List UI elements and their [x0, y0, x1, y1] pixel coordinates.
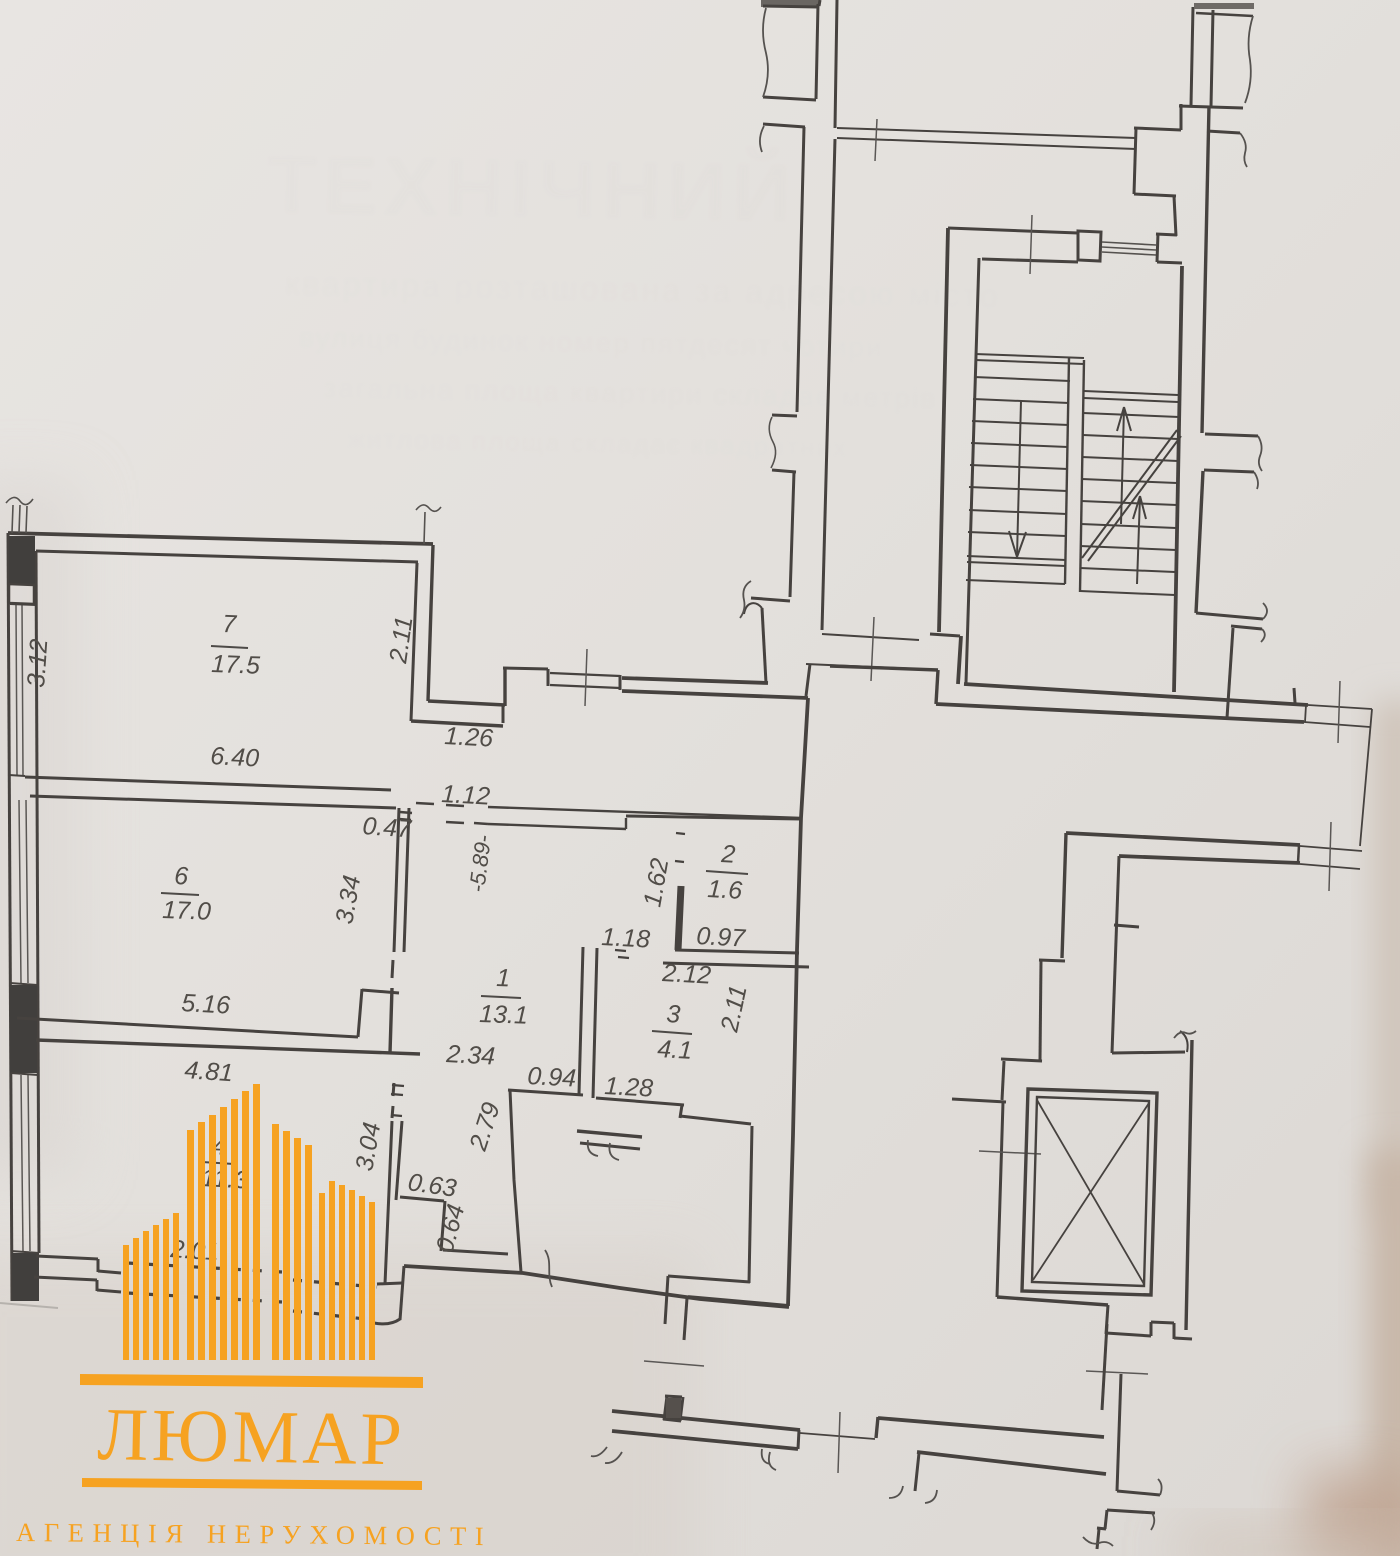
svg-text:1.12: 1.12 — [441, 780, 491, 811]
svg-text:17.0: 17.0 — [162, 896, 212, 926]
svg-text:2.12: 2.12 — [661, 959, 712, 990]
svg-text:2: 2 — [720, 840, 736, 869]
svg-text:АГЕНЦІЯ НЕРУХОМОСТІ: АГЕНЦІЯ НЕРУХОМОСТІ — [16, 1517, 492, 1551]
svg-text:0.47: 0.47 — [362, 812, 414, 843]
svg-text:17.5: 17.5 — [211, 650, 261, 680]
svg-text:6.40: 6.40 — [210, 742, 260, 773]
svg-text:6: 6 — [174, 862, 189, 890]
svg-text:1.28: 1.28 — [604, 1072, 654, 1103]
svg-text:13.1: 13.1 — [479, 1000, 529, 1030]
svg-text:ЛЮМАР: ЛЮМАР — [97, 1393, 406, 1481]
svg-text:2.34: 2.34 — [445, 1040, 496, 1071]
svg-text:3: 3 — [666, 1000, 681, 1029]
svg-text:4.1: 4.1 — [657, 1035, 693, 1065]
svg-text:1.6: 1.6 — [707, 875, 743, 905]
svg-text:7: 7 — [222, 610, 238, 639]
svg-text:5.16: 5.16 — [181, 989, 231, 1020]
svg-text:ТЕХНІЧНИЙ: ТЕХНІЧНИЙ — [266, 138, 798, 239]
svg-text:1: 1 — [496, 964, 511, 992]
svg-text:3.12: 3.12 — [22, 638, 53, 689]
svg-text:0.94: 0.94 — [527, 1062, 577, 1093]
svg-text:1.26: 1.26 — [444, 722, 494, 753]
svg-text:4.81: 4.81 — [184, 1056, 235, 1087]
svg-text:0.97: 0.97 — [696, 922, 747, 953]
svg-text:1.18: 1.18 — [601, 923, 651, 954]
